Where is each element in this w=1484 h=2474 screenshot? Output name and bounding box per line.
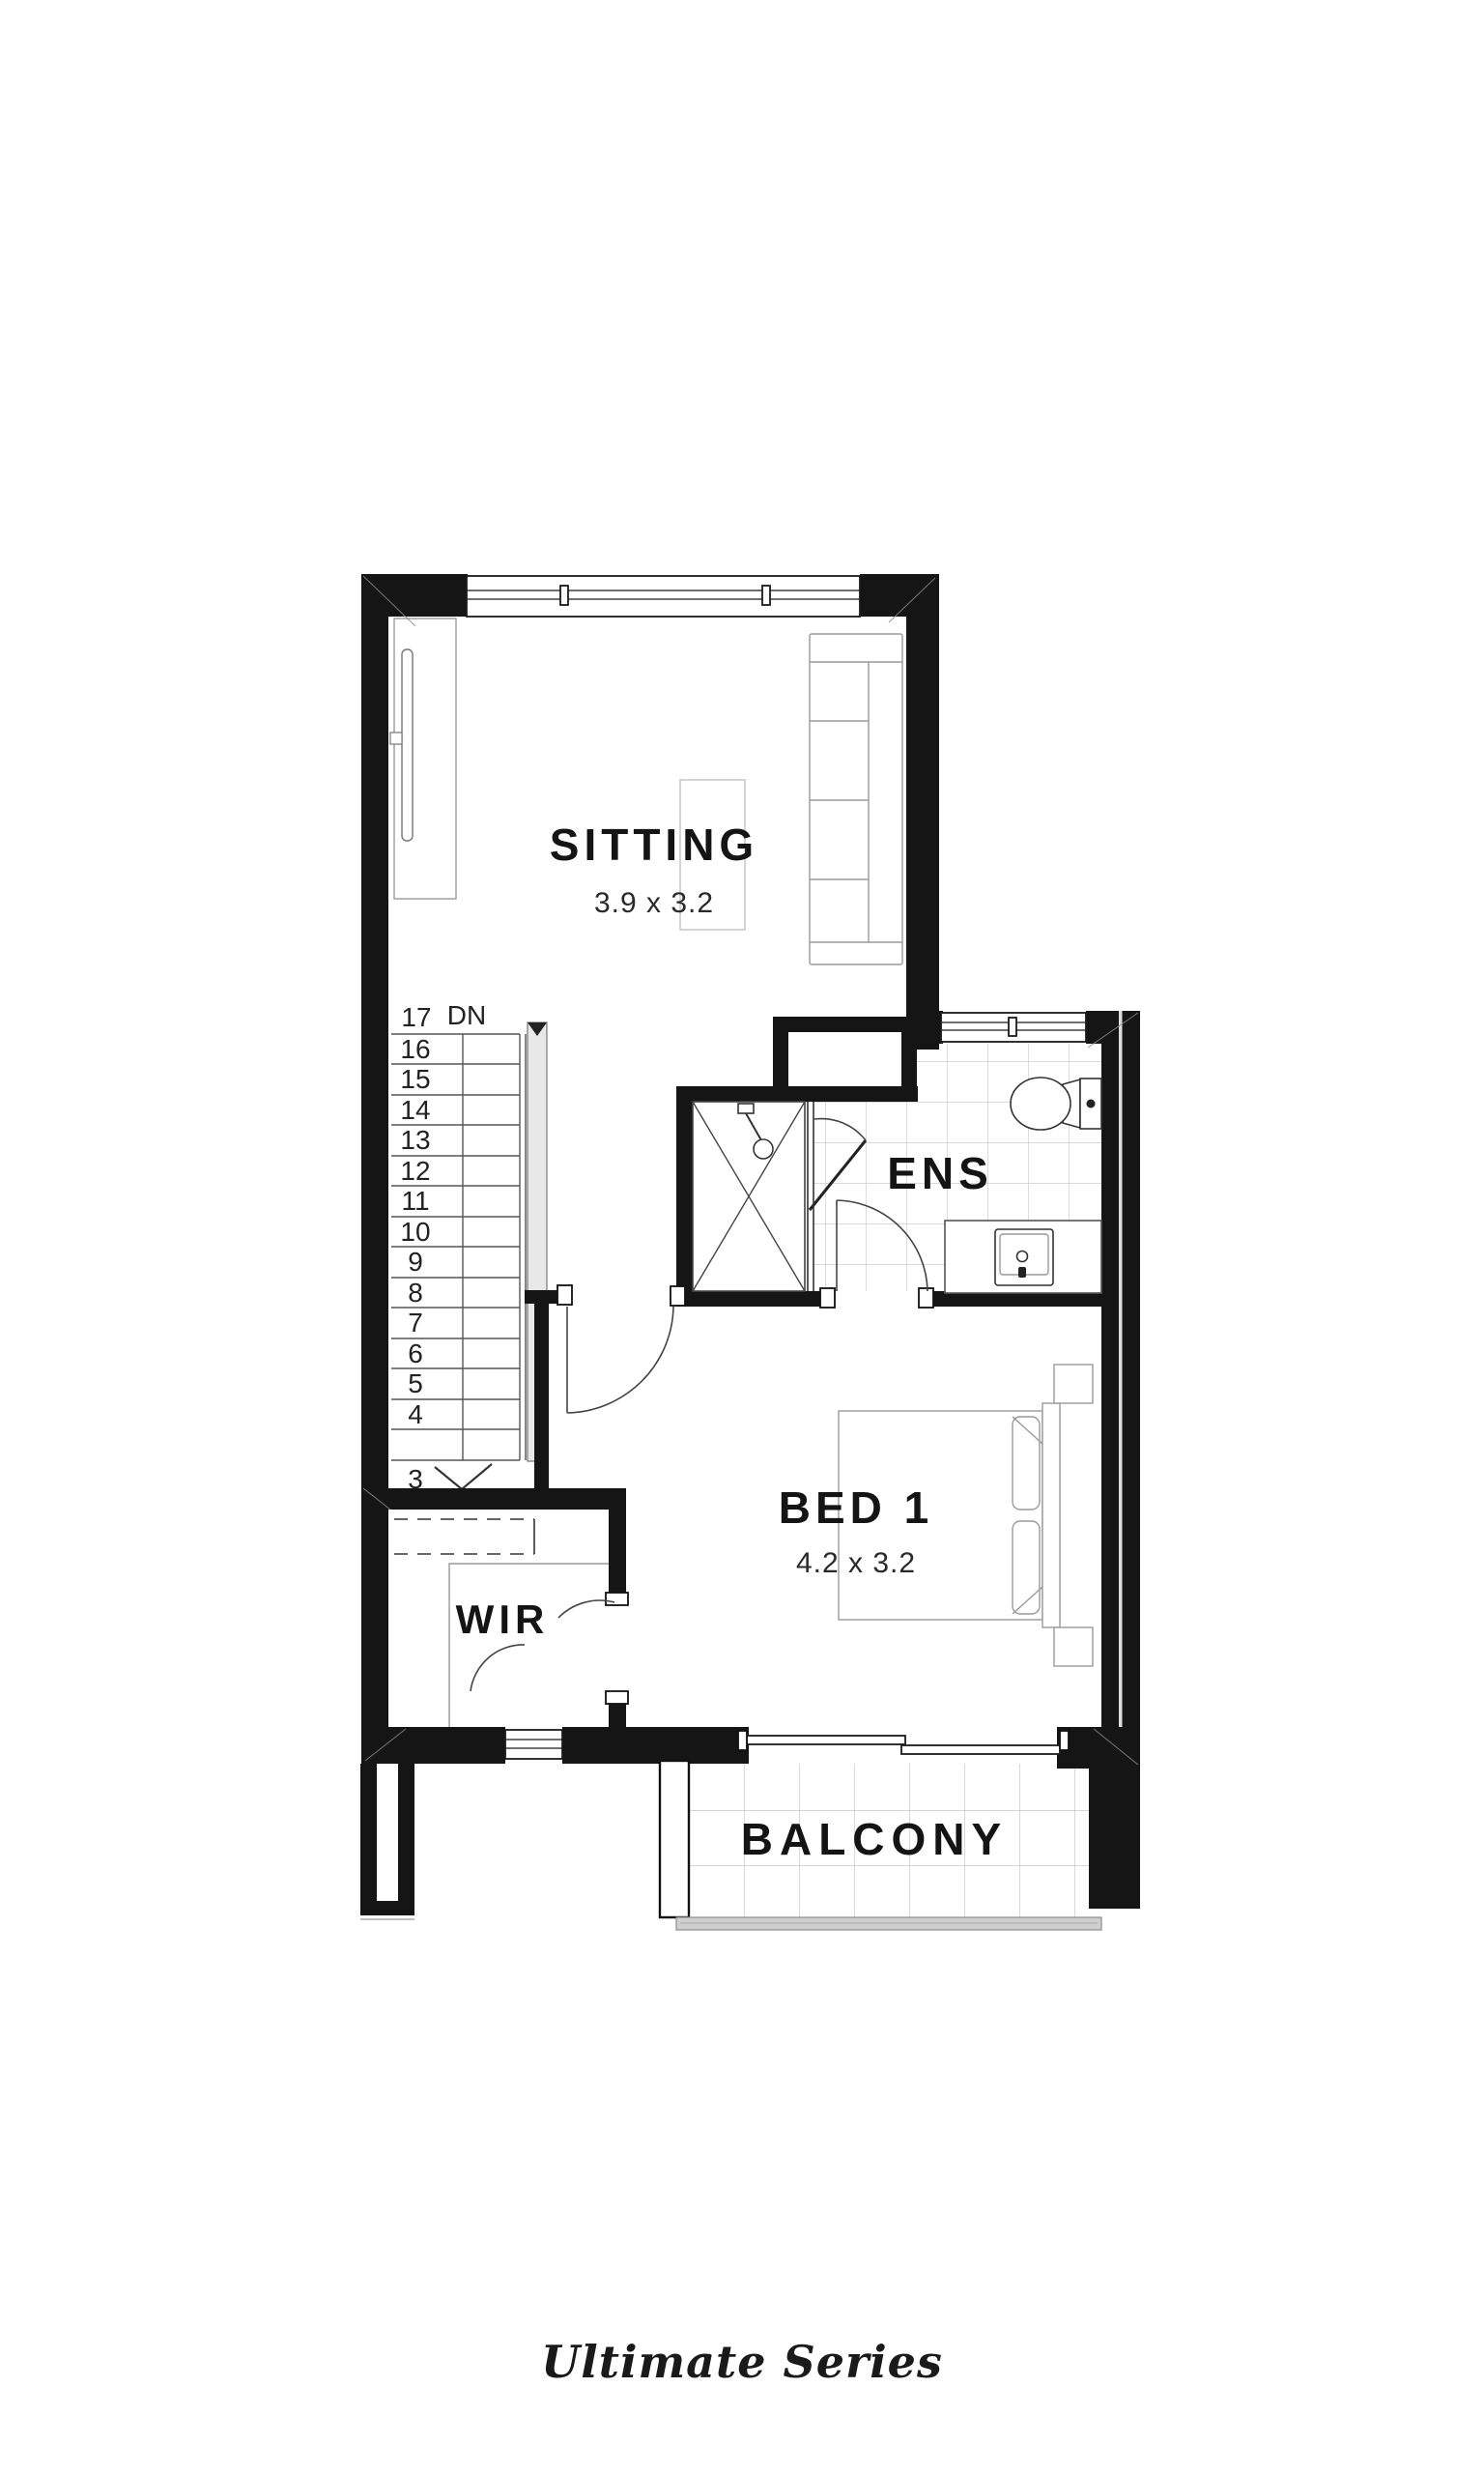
- stair-number: 9: [408, 1247, 423, 1277]
- door-jamb: [671, 1286, 685, 1306]
- stair-number: 10: [400, 1217, 430, 1247]
- door-jamb: [557, 1285, 572, 1305]
- stair-number: 7: [408, 1308, 423, 1338]
- tv-unit: [390, 618, 456, 899]
- wir-label: WIR: [456, 1597, 550, 1642]
- stair-number: 8: [408, 1278, 423, 1308]
- balcony-sliding-door: [738, 1731, 1069, 1754]
- pillow: [1013, 1521, 1040, 1614]
- sitting-dims: 3.9 x 3.2: [594, 887, 714, 919]
- toilet-icon: [1011, 1078, 1101, 1130]
- headboard: [1042, 1403, 1060, 1627]
- wir-window: [505, 1730, 562, 1759]
- shower: [693, 1102, 813, 1291]
- stair-number: 14: [400, 1095, 430, 1125]
- stair-number: 17: [401, 1002, 431, 1032]
- stair-down-label: DN: [447, 1000, 486, 1030]
- stair-number: 4: [408, 1399, 423, 1429]
- door-jamb: [606, 1691, 628, 1704]
- bedside-table-bottom: [1054, 1627, 1093, 1666]
- bedside-table-top: [1054, 1365, 1093, 1403]
- tv-icon: [402, 649, 413, 841]
- sofa: [810, 634, 902, 964]
- stair-number: 16: [400, 1034, 430, 1064]
- pillow: [1013, 1417, 1040, 1510]
- ens-label: ENS: [887, 1148, 993, 1198]
- pier-column: [360, 1764, 414, 1919]
- balcony-side-wall: [660, 1761, 689, 1917]
- series-title: Ultimate Series: [541, 2336, 943, 2388]
- door-jamb: [820, 1288, 835, 1308]
- balcony-fascia: [676, 1917, 1101, 1930]
- floor-plan-page: SITTING 3.9 x 3.2 ENS BED 1 4.2 x 3.2 WI…: [0, 0, 1484, 2474]
- stair-number: 15: [400, 1064, 430, 1094]
- ens-window: [941, 1013, 1086, 1042]
- wardrobe-rail-dashed: [394, 1519, 534, 1554]
- balcony-label: BALCONY: [741, 1814, 1008, 1864]
- sitting-label: SITTING: [550, 820, 758, 870]
- stair-number: 13: [400, 1125, 430, 1155]
- bed1-door-swing: [567, 1307, 673, 1413]
- stair-number: 12: [400, 1156, 430, 1186]
- stair-number: 6: [408, 1338, 423, 1368]
- door-jamb: [919, 1288, 933, 1308]
- stair-number: 11: [401, 1186, 429, 1216]
- stair-number: 3: [408, 1464, 423, 1494]
- sitting-window: [467, 576, 860, 617]
- stair-down-arrow-icon: [435, 1464, 492, 1489]
- vanity: [945, 1221, 1101, 1293]
- door-jamb: [606, 1593, 628, 1605]
- wir-robe-outline: [449, 1564, 609, 1727]
- bed1-label: BED 1: [779, 1482, 933, 1533]
- stair-number: 5: [408, 1368, 423, 1398]
- bed1-dims: 4.2 x 3.2: [796, 1547, 916, 1579]
- floor-plan-drawing: SITTING 3.9 x 3.2 ENS BED 1 4.2 x 3.2 WI…: [0, 0, 1484, 2474]
